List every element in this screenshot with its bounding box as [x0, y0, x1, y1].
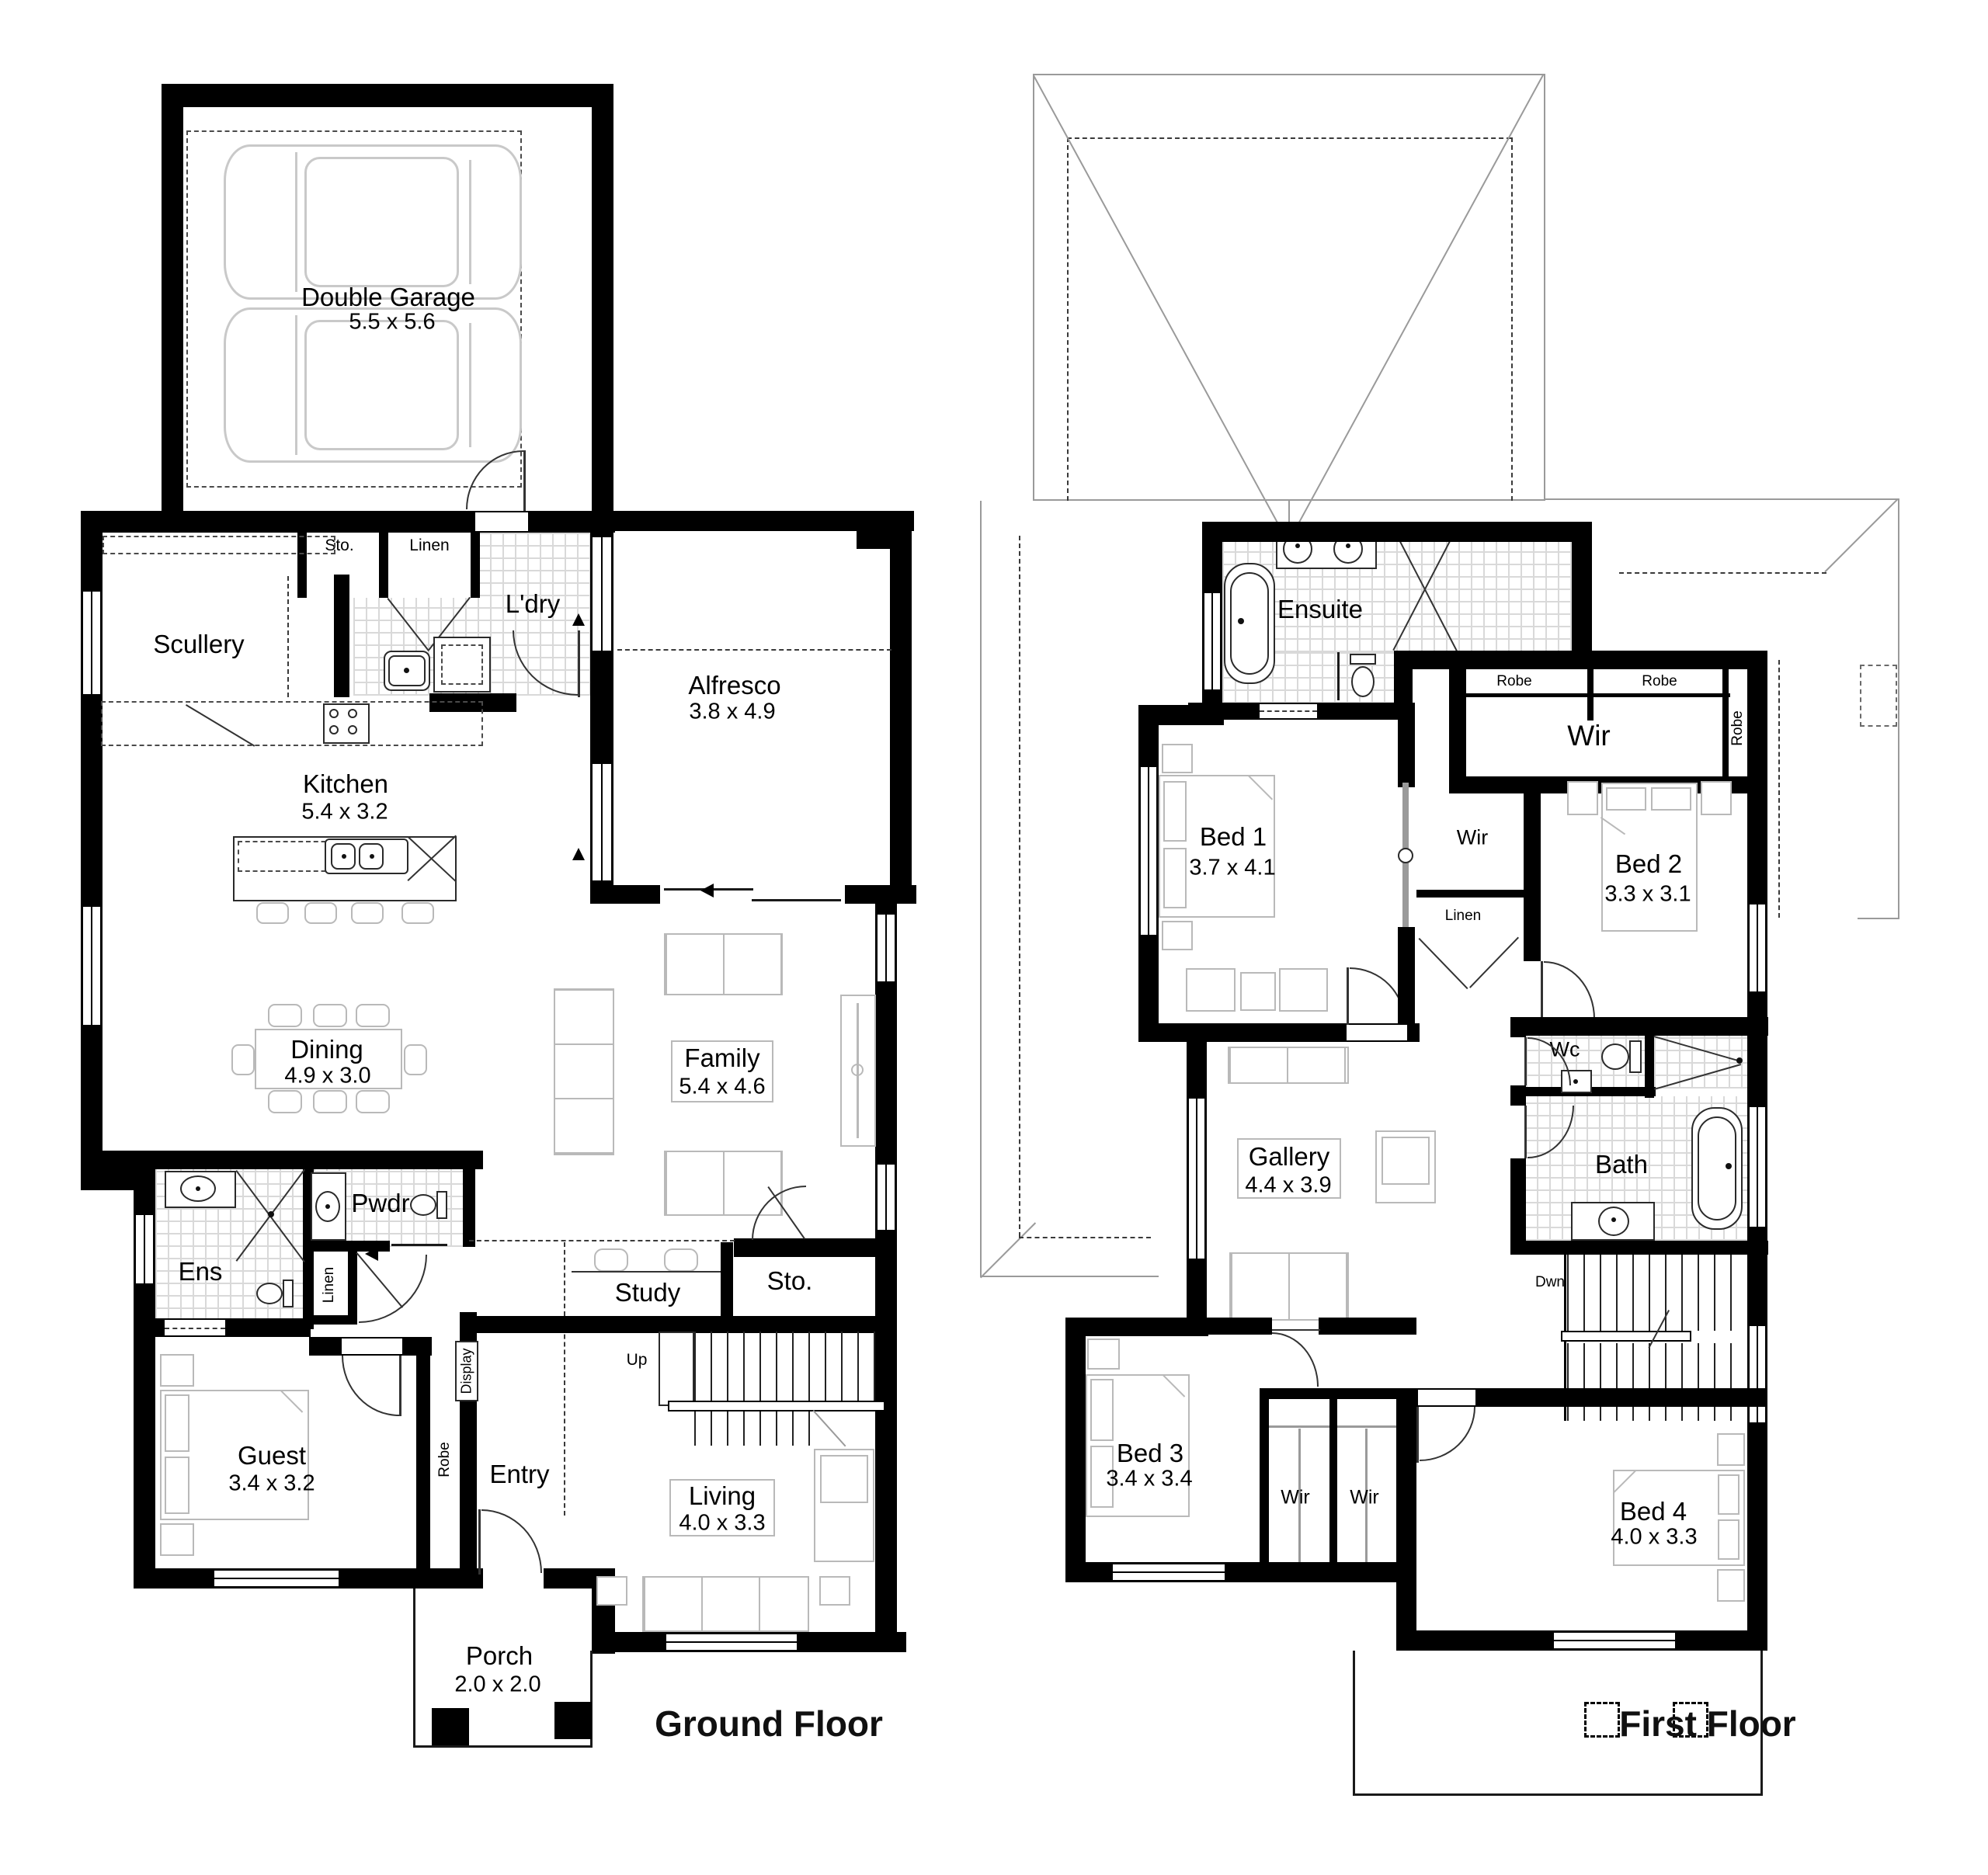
- burner: [329, 709, 339, 718]
- window: [875, 1165, 897, 1230]
- shower-drain: [268, 1211, 274, 1217]
- porch-outline: [413, 1745, 592, 1748]
- door-opening: [1524, 961, 1541, 1019]
- window: [1747, 905, 1767, 991]
- door-leaf: [1541, 961, 1543, 1019]
- roof-line: [617, 649, 891, 651]
- window: [1138, 767, 1159, 935]
- dining-chair: [231, 1044, 255, 1075]
- tap-icon: [1726, 1163, 1732, 1169]
- wall: [1416, 890, 1524, 898]
- tap-icon: [404, 668, 409, 673]
- roof-line: [1858, 918, 1899, 919]
- roof-dashed: [1067, 137, 1069, 501]
- wall: [721, 1242, 733, 1318]
- opening-dash: [165, 1328, 225, 1329]
- stair-label: Dwn: [1535, 1274, 1565, 1291]
- room-dims: 3.3 x 3.1: [1604, 882, 1691, 908]
- wall: [1449, 669, 1466, 793]
- window-arrow-icon: [572, 848, 585, 860]
- stairs: [1567, 1255, 1744, 1331]
- bedside-table: [1717, 1569, 1745, 1602]
- sliding-door: [660, 882, 845, 907]
- wall: [1510, 1241, 1768, 1255]
- window: [214, 1568, 339, 1589]
- pillow: [1718, 1519, 1739, 1560]
- roof-hip: [1824, 499, 1898, 573]
- desk-chair: [594, 1248, 628, 1272]
- dining-chair: [268, 1090, 302, 1113]
- tap-icon: [1346, 543, 1350, 548]
- tap-icon: [1573, 1079, 1578, 1084]
- floor-title: First Floor: [1619, 1703, 1795, 1745]
- car-rear-window: [469, 160, 471, 284]
- car-cabin: [304, 320, 460, 450]
- room-label: Display: [459, 1348, 475, 1394]
- wall: [1398, 716, 1415, 787]
- wall: [1202, 522, 1592, 542]
- room-label: Robe: [436, 1442, 454, 1477]
- door-opening: [1510, 1037, 1526, 1085]
- wall: [1394, 651, 1767, 669]
- front-door-leaf: [478, 1509, 481, 1575]
- door-arc: [359, 1255, 427, 1323]
- roof-line: [980, 501, 982, 1277]
- door-leaf: [1272, 1329, 1320, 1331]
- wall: [379, 533, 388, 598]
- stool: [256, 902, 289, 924]
- roof-hip: [980, 1222, 1036, 1278]
- room-label: Linen: [1445, 908, 1482, 925]
- car-rear-window: [469, 323, 471, 447]
- door-leaf: [1416, 1407, 1419, 1463]
- room-label: Double Garage: [301, 283, 475, 312]
- wall: [1065, 1336, 1086, 1582]
- wall: [592, 84, 613, 523]
- pillow: [1718, 1474, 1739, 1515]
- stair-landing: [659, 1332, 694, 1406]
- window: [1187, 1099, 1207, 1259]
- room-label: Robe: [1642, 673, 1677, 690]
- door-arc: [1420, 1407, 1475, 1461]
- front-door-arc: [481, 1509, 542, 1573]
- room-dims: 2.0 x 2.0: [454, 1672, 540, 1698]
- roof-dashed: [1067, 137, 1511, 139]
- wall: [875, 885, 897, 1652]
- desk-chair: [664, 1248, 698, 1272]
- room-dims: 5.4 x 4.6: [679, 1075, 765, 1100]
- wall: [162, 84, 183, 512]
- roof-line: [1898, 498, 1899, 919]
- floor-plan: Double Garage 5.5 x 5.6 Sto. Linen L'dry…: [0, 0, 1988, 1875]
- door-opening: [475, 512, 528, 531]
- room-label: Bed 1: [1200, 822, 1267, 852]
- wall: [1398, 927, 1415, 1023]
- armchair: [1186, 968, 1236, 1012]
- room-label: Kitchen: [303, 769, 388, 799]
- room-label: Family: [684, 1043, 759, 1073]
- wall: [1722, 669, 1729, 776]
- room-label: Dining: [290, 1035, 363, 1064]
- tap-icon: [1295, 543, 1300, 548]
- car-windshield: [295, 152, 297, 292]
- bedside-table: [1087, 1339, 1120, 1370]
- side-table: [819, 1576, 850, 1606]
- wall: [463, 1169, 475, 1247]
- room-label: L'dry: [506, 589, 561, 619]
- slider-arrow-icon: [700, 884, 714, 898]
- tap-icon: [342, 854, 346, 859]
- wall: [890, 511, 912, 896]
- door-leaf: [399, 1356, 401, 1416]
- wall: [1394, 669, 1413, 707]
- pillow: [1606, 787, 1646, 811]
- wall: [1065, 1318, 1208, 1336]
- car-cabin: [304, 157, 460, 287]
- window: [590, 764, 613, 880]
- porch-roof-outline: [1353, 1793, 1763, 1796]
- dining-chair: [356, 1090, 390, 1113]
- stool: [401, 902, 434, 924]
- roof-line: [980, 1276, 1159, 1277]
- pillow: [165, 1457, 189, 1514]
- wall: [101, 1151, 483, 1169]
- stool: [351, 902, 384, 924]
- tap-icon: [325, 1204, 330, 1209]
- pillow: [165, 1394, 189, 1452]
- tap-icon: [1611, 1217, 1616, 1222]
- stairs: [694, 1411, 811, 1446]
- toilet-bowl: [1601, 1043, 1629, 1070]
- wall: [348, 1252, 357, 1325]
- wall: [1319, 1318, 1416, 1335]
- bathtub-inner: [1230, 572, 1269, 675]
- column-marker: [1584, 1702, 1620, 1738]
- window: [590, 537, 613, 651]
- pantry-line: [287, 576, 289, 697]
- closet-door: [1469, 937, 1519, 988]
- sofa: [642, 1576, 809, 1632]
- stair-break-line: [813, 1410, 846, 1446]
- tap-icon: [196, 1186, 200, 1191]
- wall: [1260, 1399, 1269, 1564]
- side-table: [596, 1576, 627, 1606]
- sofa: [664, 933, 783, 995]
- room-dims: 3.7 x 4.1: [1189, 856, 1275, 881]
- porch-outline: [413, 1589, 415, 1747]
- roof-dashed-box: [1860, 665, 1897, 727]
- room-label: Living: [689, 1481, 756, 1511]
- toilet-bowl: [410, 1194, 436, 1216]
- bedside-table: [160, 1523, 194, 1556]
- pillow: [1090, 1379, 1114, 1441]
- dining-chair: [356, 1004, 390, 1027]
- door-arc: [342, 1356, 399, 1416]
- sofa: [1228, 1047, 1349, 1084]
- sliding-door-panel: [752, 899, 841, 901]
- door-opening: [342, 1339, 402, 1354]
- dining-chair: [313, 1090, 347, 1113]
- room-label: Scullery: [153, 630, 244, 659]
- door-opening: [1347, 1025, 1407, 1040]
- towel-rail: [391, 1244, 447, 1246]
- wall: [1329, 1399, 1337, 1564]
- washing-machine-inner: [441, 644, 483, 685]
- stairs: [694, 1332, 888, 1405]
- pillow: [1163, 781, 1187, 842]
- armchair-cushion: [1382, 1137, 1430, 1185]
- roof-line: [1545, 498, 1899, 500]
- door-leaf: [1524, 1106, 1527, 1158]
- room-label: Bed 2: [1615, 849, 1682, 879]
- room-label: Wir: [1567, 720, 1610, 752]
- floor-title: Ground Floor: [655, 1703, 883, 1745]
- roof-dashed: [1778, 660, 1780, 918]
- room-dims: 3.8 x 4.9: [689, 700, 775, 725]
- wall: [162, 84, 613, 107]
- window: [1747, 1326, 1767, 1422]
- bedside-table: [160, 1354, 194, 1387]
- window: [1554, 1630, 1675, 1651]
- closet-shelf: [1269, 1425, 1329, 1428]
- bedside-table: [1162, 921, 1193, 950]
- room-dims: 4.0 x 3.3: [1611, 1525, 1697, 1550]
- room-dims: 5.5 x 5.6: [349, 310, 435, 335]
- stair-label: Up: [627, 1351, 648, 1370]
- window: [875, 915, 897, 981]
- porch-pier: [554, 1702, 592, 1739]
- room-label: Ens: [179, 1257, 223, 1286]
- wall: [334, 575, 349, 697]
- wall: [1396, 1388, 1416, 1564]
- room-label: Wir: [1350, 1487, 1378, 1509]
- wall: [81, 511, 615, 533]
- window: [666, 1632, 797, 1652]
- toilet-tank: [436, 1191, 447, 1219]
- door-arc: [1544, 961, 1595, 1019]
- porch-pier: [432, 1708, 469, 1745]
- room-label: Porch: [466, 1641, 533, 1671]
- window: [81, 907, 103, 1025]
- wall: [1510, 1017, 1768, 1036]
- room-label: Bed 4: [1620, 1497, 1687, 1526]
- roof-dashed: [1019, 1237, 1151, 1238]
- wall: [416, 1337, 430, 1570]
- shower-floor: [1654, 1036, 1747, 1089]
- wall: [1138, 705, 1224, 725]
- car-windshield: [295, 315, 297, 455]
- room-label: Linen: [409, 536, 449, 555]
- bulkhead-line: [469, 1240, 735, 1241]
- room-label: Wir: [1457, 826, 1488, 850]
- room-dims: 5.4 x 3.2: [301, 800, 388, 825]
- burner: [329, 725, 339, 734]
- hall-arrow-icon: [365, 1247, 378, 1261]
- pillow: [1651, 787, 1691, 811]
- room-label: Alfresco: [688, 671, 780, 700]
- pillow: [1163, 848, 1187, 908]
- room-label: Guest: [238, 1441, 306, 1470]
- room-label: Linen: [321, 1267, 338, 1304]
- armchair: [1279, 968, 1328, 1012]
- door-opening: [1510, 1106, 1526, 1158]
- roof-dashed: [1619, 572, 1826, 574]
- room-label: Robe: [1729, 710, 1746, 745]
- roof-dashed: [1511, 137, 1513, 501]
- rail-handle: [1398, 848, 1413, 863]
- room-label: Gallery: [1249, 1142, 1330, 1172]
- sofa: [1229, 1252, 1349, 1321]
- stair-handrail: [1561, 1331, 1691, 1342]
- closet-shelf: [1337, 1425, 1396, 1428]
- room-label: Sto.: [767, 1266, 813, 1296]
- room-dims: 4.9 x 3.0: [284, 1064, 370, 1089]
- door-leaf: [523, 450, 526, 511]
- side-table: [1240, 972, 1276, 1011]
- window: [134, 1215, 155, 1283]
- dining-chair: [268, 1004, 302, 1027]
- closet-door: [1419, 938, 1468, 989]
- roof-dashed: [1019, 536, 1020, 1237]
- partition: [1337, 652, 1340, 700]
- room-dims: 4.4 x 3.9: [1245, 1173, 1331, 1199]
- room-label: Study: [615, 1278, 680, 1307]
- wall: [81, 1168, 157, 1190]
- tap-icon: [1238, 618, 1244, 624]
- room-dims: 3.4 x 3.2: [228, 1471, 315, 1497]
- sofa: [554, 988, 614, 1155]
- room-dims: 3.4 x 3.4: [1106, 1467, 1192, 1492]
- tap-icon: [370, 854, 374, 859]
- dining-chair: [313, 1004, 347, 1027]
- wall: [1260, 1388, 1406, 1399]
- toilet-tank: [1350, 654, 1376, 665]
- sofa-cushion: [820, 1455, 868, 1503]
- window: [1113, 1562, 1225, 1582]
- wall: [1572, 522, 1592, 654]
- door-leaf: [1347, 967, 1349, 1025]
- burner: [348, 725, 357, 734]
- room-label: Wir: [1281, 1487, 1309, 1509]
- stair-handrail: [668, 1401, 885, 1411]
- wall: [1205, 1318, 1272, 1335]
- wall: [416, 1568, 483, 1589]
- shower-head: [1736, 1057, 1743, 1064]
- room-label: Ensuite: [1277, 595, 1363, 624]
- bedside-table: [1717, 1433, 1745, 1466]
- wall: [469, 1316, 890, 1333]
- door-arc: [1272, 1332, 1319, 1387]
- room-label: Bed 3: [1117, 1439, 1183, 1468]
- car-icon: [224, 144, 522, 300]
- stool: [304, 902, 337, 924]
- wall: [471, 533, 480, 598]
- wall: [857, 513, 893, 549]
- bedside-table: [1701, 781, 1732, 815]
- wall: [312, 1315, 357, 1325]
- opening-dash: [1260, 710, 1317, 712]
- toilet-tank: [283, 1280, 294, 1307]
- burner: [348, 709, 357, 718]
- room-label: Robe: [1496, 673, 1531, 690]
- tv-mount: [851, 1064, 864, 1076]
- wall: [734, 1238, 891, 1257]
- desk-edge: [572, 1271, 721, 1273]
- toilet-tank: [1629, 1040, 1642, 1073]
- stairs: [1567, 1343, 1744, 1421]
- toilet-bowl: [1351, 666, 1375, 697]
- toilet-bowl: [256, 1283, 283, 1304]
- room-label: Pwdr: [351, 1189, 409, 1218]
- wall: [1466, 693, 1730, 697]
- room-dims: 4.0 x 3.3: [679, 1511, 765, 1536]
- window: [81, 592, 103, 694]
- window: [1202, 593, 1222, 689]
- door-leaf: [1524, 1037, 1527, 1085]
- door-leaf: [578, 630, 580, 697]
- kitchen-bench: [101, 701, 483, 746]
- scullery-bench: [103, 536, 335, 554]
- window: [1747, 1107, 1767, 1227]
- porch-roof-outline: [1353, 1651, 1355, 1795]
- door-opening: [1418, 1390, 1475, 1405]
- bedside-table: [1567, 781, 1598, 815]
- dining-chair: [404, 1044, 427, 1075]
- bedside-table: [1162, 744, 1193, 773]
- window-arrow-icon: [572, 613, 585, 626]
- room-label: Entry: [489, 1460, 549, 1489]
- bulkhead-line: [564, 1242, 565, 1516]
- room-label: Bath: [1595, 1150, 1648, 1179]
